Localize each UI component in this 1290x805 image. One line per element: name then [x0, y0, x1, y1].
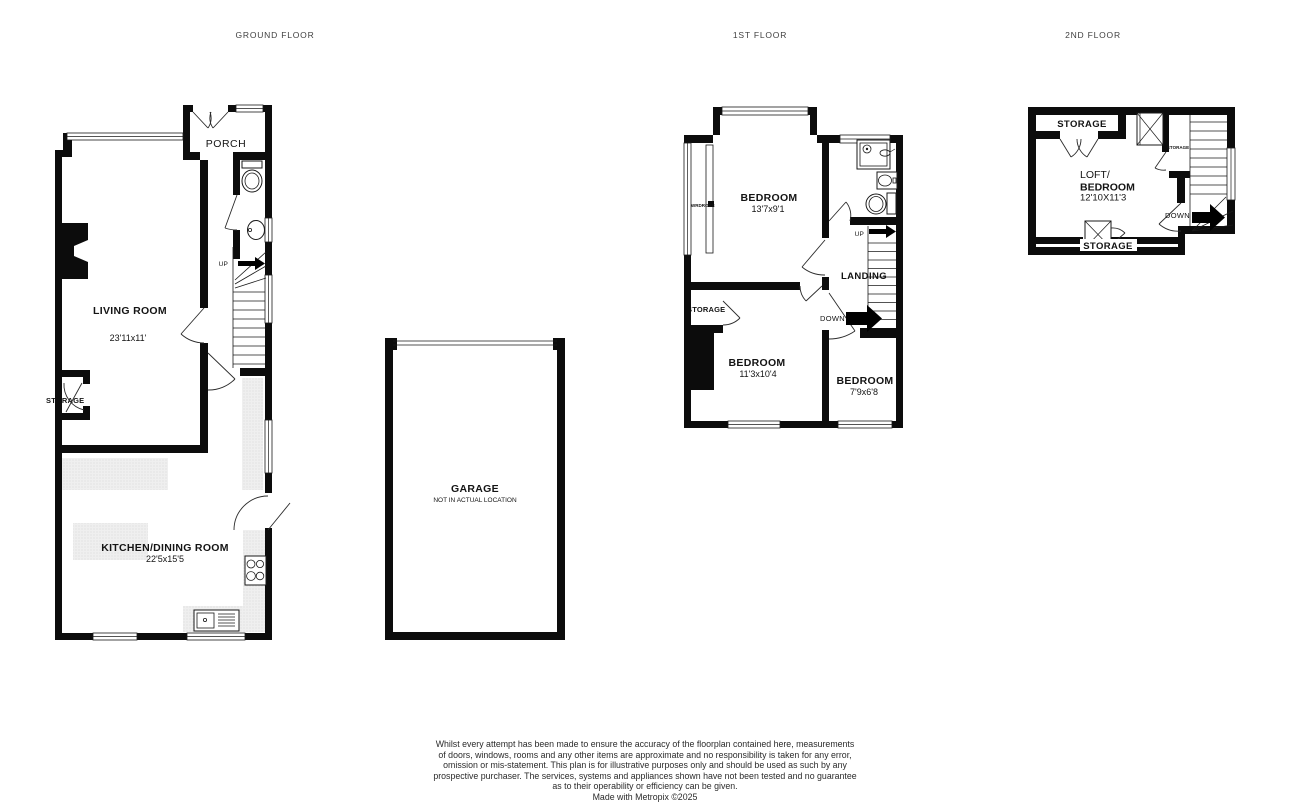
wc-sink-icon [248, 221, 265, 240]
bedroom2-dims: 11'3x10'4 [739, 369, 776, 379]
second-storage-top-label: STORAGE [1057, 119, 1107, 130]
bathroom-toilet-icon [866, 193, 896, 214]
first-up-arrow-icon [869, 225, 896, 238]
kitchen-label: KITCHEN/DINING ROOM [101, 542, 229, 554]
loft-dims: 12'10X11'3 [1080, 193, 1126, 204]
bathroom-sink-icon [877, 172, 897, 189]
wardrobe [706, 145, 714, 253]
loft-label-line1: LOFT/ [1080, 169, 1110, 181]
disclaimer-line-2: of doors, windows, rooms and any other i… [0, 750, 1290, 761]
bedroom3-label: BEDROOM [837, 375, 894, 387]
disclaimer: Whilst every attempt has been made to en… [0, 739, 1290, 803]
first-storage-label: STORAGE [687, 305, 725, 314]
garage-note: NOT IN ACTUAL LOCATION [433, 497, 517, 504]
bedroom3-dims: 7'9x6'8 [850, 387, 878, 397]
disclaimer-line-3: omission or mis-statement. This plan is … [0, 760, 1290, 771]
kitchen-dims: 22'5x15'5 [146, 554, 184, 564]
ground-storage-label: STORAGE [46, 396, 84, 405]
second-storage-small-label: STORAGE [1167, 145, 1189, 150]
hob-icon [245, 556, 266, 585]
first-up-label: UP [855, 231, 864, 238]
wardrobe-label: WRDROBE [691, 203, 715, 208]
disclaimer-line-4: prospective purchaser. The services, sys… [0, 771, 1290, 782]
garage-plan: GARAGE NOT IN ACTUAL LOCATION [385, 338, 565, 640]
garage-label: GARAGE [451, 483, 499, 495]
ground-up-label: UP [219, 261, 228, 268]
shower-icon [857, 140, 895, 169]
second-floor-windows [1227, 148, 1235, 200]
up-arrow-icon [238, 257, 265, 270]
metropix-credit: Made with Metropix ©2025 [0, 792, 1290, 803]
kitchen-sink-icon [194, 610, 239, 631]
disclaimer-line-1: Whilst every attempt has been made to en… [0, 739, 1290, 750]
second-floor-plan: DOWN STORAGE STORAGE STORAGE LOFT/ BEDRO… [1028, 107, 1235, 255]
bedroom2-label: BEDROOM [729, 357, 786, 369]
first-floor-plan: STORAGE [684, 107, 903, 428]
toilet-icon [242, 161, 262, 192]
ground-floor-plan: STORAGE [46, 105, 290, 640]
kitchen-counter-right-hatch [242, 378, 263, 490]
disclaimer-line-5: as to their operability or efficiency ca… [0, 781, 1290, 792]
floorplan-svg: GROUND FLOOR 1ST FLOOR 2ND FLOOR STORAGE [0, 0, 1290, 800]
bedroom1-label: BEDROOM [741, 192, 798, 204]
living-room-dims: 23'11x11' [110, 333, 147, 343]
landing-label: LANDING [841, 271, 887, 282]
first-down-label: DOWN [820, 314, 845, 323]
down-arrow-icon [846, 305, 882, 332]
living-room-label: LIVING ROOM [93, 305, 167, 317]
second-floor-title: 2ND FLOOR [1065, 30, 1121, 40]
roof-window-top-icon [1137, 113, 1163, 145]
porch-label: PORCH [206, 138, 246, 150]
ground-floor-title: GROUND FLOOR [235, 30, 314, 40]
second-storage-bottom-label: STORAGE [1083, 241, 1133, 252]
kitchen-counter-hatch [62, 458, 168, 490]
second-down-label: DOWN [1165, 211, 1190, 220]
first-floor-title: 1ST FLOOR [733, 30, 787, 40]
bedroom1-dims: 13'7x9'1 [752, 204, 785, 214]
